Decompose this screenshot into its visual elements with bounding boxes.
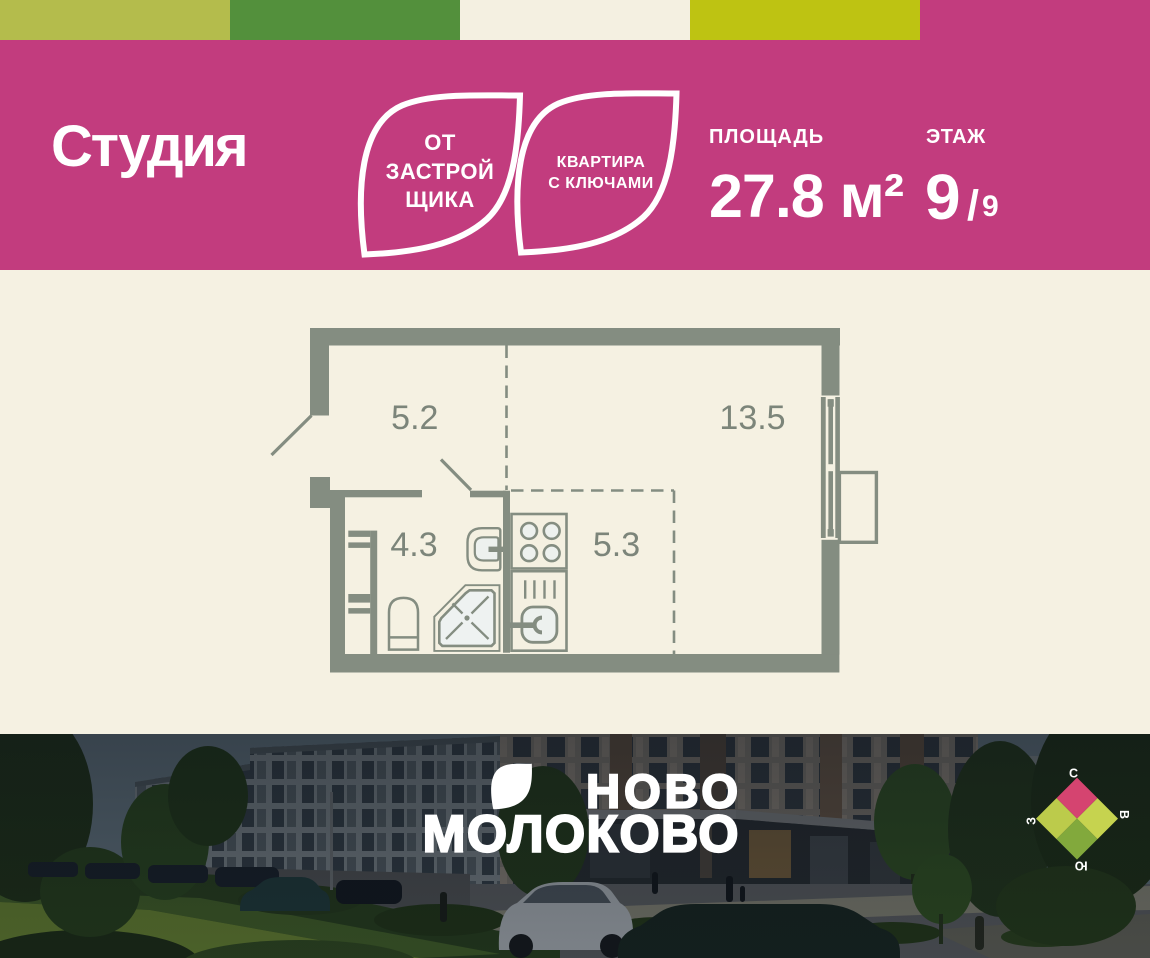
svg-text:Ю: Ю	[1075, 859, 1088, 873]
svg-text:З: З	[1025, 817, 1039, 825]
svg-text:В: В	[1117, 810, 1131, 819]
svg-text:С: С	[1069, 767, 1078, 781]
svg-text:МОЛОКОВО: МОЛОКОВО	[423, 805, 740, 863]
svg-text:5.3: 5.3	[593, 526, 640, 564]
svg-text:13.5: 13.5	[719, 399, 785, 437]
svg-text:4.3: 4.3	[390, 526, 437, 564]
svg-text:5.2: 5.2	[391, 399, 438, 437]
